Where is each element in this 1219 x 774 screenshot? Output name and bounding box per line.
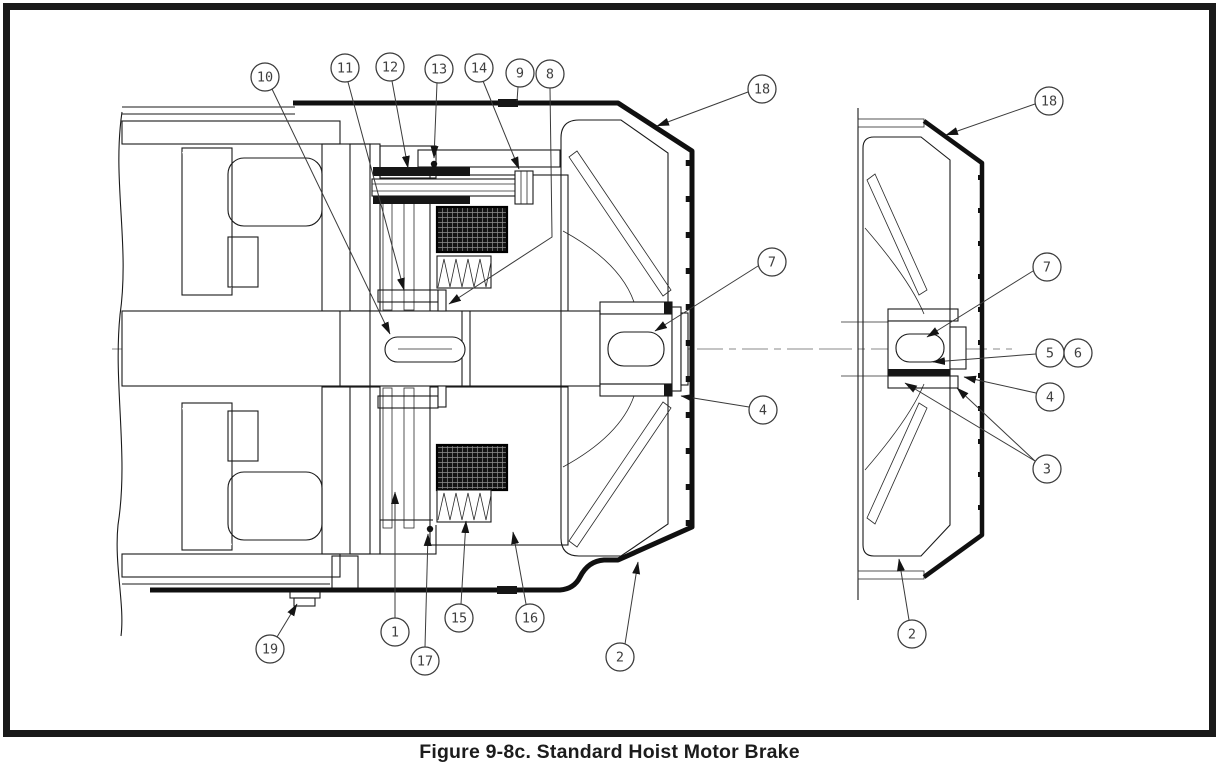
cover-band-top bbox=[858, 119, 924, 127]
callout-1-main: 1 bbox=[381, 492, 409, 646]
balloon-number-13: 13 bbox=[431, 62, 447, 78]
balloon-number-1: 1 bbox=[391, 625, 399, 641]
fan-blade-bottom bbox=[569, 402, 671, 547]
callout-15-main: 15 bbox=[445, 521, 473, 632]
hub-flange-top bbox=[600, 302, 672, 314]
fan-blade-top bbox=[569, 151, 671, 296]
adjusting-plate-bottom bbox=[373, 196, 470, 204]
vent-wedge bbox=[182, 150, 232, 290]
disc-hub-bottom bbox=[378, 396, 438, 408]
release-bracket bbox=[418, 150, 560, 167]
balloon-number-14: 14 bbox=[471, 61, 487, 77]
end-view bbox=[826, 108, 1012, 600]
callout-12-main: 12 bbox=[376, 53, 408, 168]
brake-wheel-web-top bbox=[438, 290, 446, 311]
friction-disc bbox=[383, 388, 392, 528]
cover-band-bottom bbox=[858, 571, 924, 579]
stator-winding-top bbox=[228, 158, 322, 226]
base-bolt bbox=[294, 598, 315, 606]
retainer-plate-end bbox=[950, 327, 966, 369]
leader-line-14 bbox=[483, 81, 519, 169]
cover-gasket-top bbox=[498, 99, 518, 107]
hub-keyway bbox=[608, 332, 664, 366]
callout-4-end: 4 bbox=[964, 377, 1064, 411]
brake-coil-bottom bbox=[437, 445, 507, 490]
leader-line-9 bbox=[517, 87, 518, 101]
balloon-number-2: 2 bbox=[908, 627, 916, 643]
balloon-number-18: 18 bbox=[754, 82, 770, 98]
callout-2-main: 2 bbox=[606, 562, 638, 671]
cover-gasket-bottom bbox=[497, 586, 517, 594]
leader-line-7 bbox=[655, 266, 758, 331]
leader-line-3 bbox=[905, 383, 1035, 461]
hub-key-strip bbox=[888, 369, 950, 376]
callout-2-end: 2 bbox=[898, 559, 926, 648]
balloon-number-2: 2 bbox=[616, 650, 624, 666]
callout-18-end: 18 bbox=[946, 87, 1063, 135]
balloon-number-4: 4 bbox=[759, 403, 767, 419]
brake-coil-top bbox=[437, 207, 507, 252]
balloon-number-9: 9 bbox=[516, 66, 524, 82]
adjusting-plate-top bbox=[373, 167, 470, 176]
callout-9-main: 9 bbox=[506, 59, 534, 101]
balloon-number-7: 7 bbox=[768, 255, 776, 271]
figure-canvas: 1011121314981874191171516218756432 bbox=[0, 0, 1219, 774]
leader-line-19 bbox=[277, 604, 297, 637]
balloon-number-11: 11 bbox=[337, 61, 353, 77]
shaft-body bbox=[122, 311, 600, 386]
balloon-number-5: 5 bbox=[1046, 346, 1054, 362]
leader-line-2 bbox=[625, 562, 638, 644]
figure-page: 1011121314981874191171516218756432 Figur… bbox=[0, 0, 1219, 774]
leader-line-3 bbox=[957, 388, 1035, 461]
stud-hex-head bbox=[515, 171, 533, 204]
callout-4-main: 4 bbox=[681, 396, 777, 424]
hub-keyway-end bbox=[896, 334, 944, 362]
disc-hub-top bbox=[378, 290, 438, 302]
end-bracket-top bbox=[322, 144, 370, 311]
callout-7-end: 7 bbox=[927, 253, 1061, 337]
leader-line-2 bbox=[899, 559, 909, 620]
callout-17-main: 17 bbox=[411, 526, 439, 675]
leader-line-18 bbox=[657, 92, 748, 126]
stator-winding-bottom bbox=[228, 472, 322, 540]
balloon-number-6: 6 bbox=[1074, 346, 1082, 362]
callout-19-main: 19 bbox=[256, 604, 297, 663]
balloon-number-4: 4 bbox=[1046, 390, 1054, 406]
balloon-number-8: 8 bbox=[546, 67, 554, 83]
motor-shaft bbox=[122, 290, 600, 407]
hub-flange-bottom bbox=[600, 384, 672, 396]
balloon-number-7: 7 bbox=[1043, 260, 1051, 276]
friction-disc bbox=[404, 388, 414, 528]
balloon-number-3: 3 bbox=[1043, 462, 1051, 478]
end-bracket-bottom bbox=[322, 387, 370, 554]
fan-blade-bottom-end bbox=[867, 403, 927, 524]
balloon-number-18: 18 bbox=[1041, 94, 1057, 110]
shaft-keyway bbox=[385, 337, 465, 362]
frame-band-top bbox=[122, 121, 340, 144]
leader-dot-17 bbox=[427, 526, 433, 532]
callout-6-end: 6 bbox=[1064, 339, 1092, 367]
balloon-number-15: 15 bbox=[451, 611, 467, 627]
figure-caption: Figure 9-8c. Standard Hoist Motor Brake bbox=[0, 741, 1219, 764]
frame-band-bottom bbox=[122, 554, 340, 577]
release-stud bbox=[372, 179, 518, 196]
balloon-number-10: 10 bbox=[257, 70, 273, 86]
main-view bbox=[112, 99, 848, 636]
balloon-number-19: 19 bbox=[262, 642, 278, 658]
callout-18-main: 18 bbox=[657, 75, 776, 126]
leader-dot-13 bbox=[431, 161, 437, 167]
balloon-number-12: 12 bbox=[382, 60, 398, 76]
callout-7-main: 7 bbox=[655, 248, 786, 331]
brake-wheel-web-bottom bbox=[438, 386, 446, 407]
leader-line-10 bbox=[272, 89, 390, 334]
balloon-number-17: 17 bbox=[417, 654, 433, 670]
fan-blade-top-end bbox=[867, 174, 927, 295]
leader-line-12 bbox=[392, 81, 408, 168]
balloon-number-16: 16 bbox=[522, 611, 538, 627]
callout-16-main: 16 bbox=[513, 532, 544, 632]
leader-line-18 bbox=[946, 104, 1035, 135]
leader-line-4 bbox=[964, 377, 1036, 393]
